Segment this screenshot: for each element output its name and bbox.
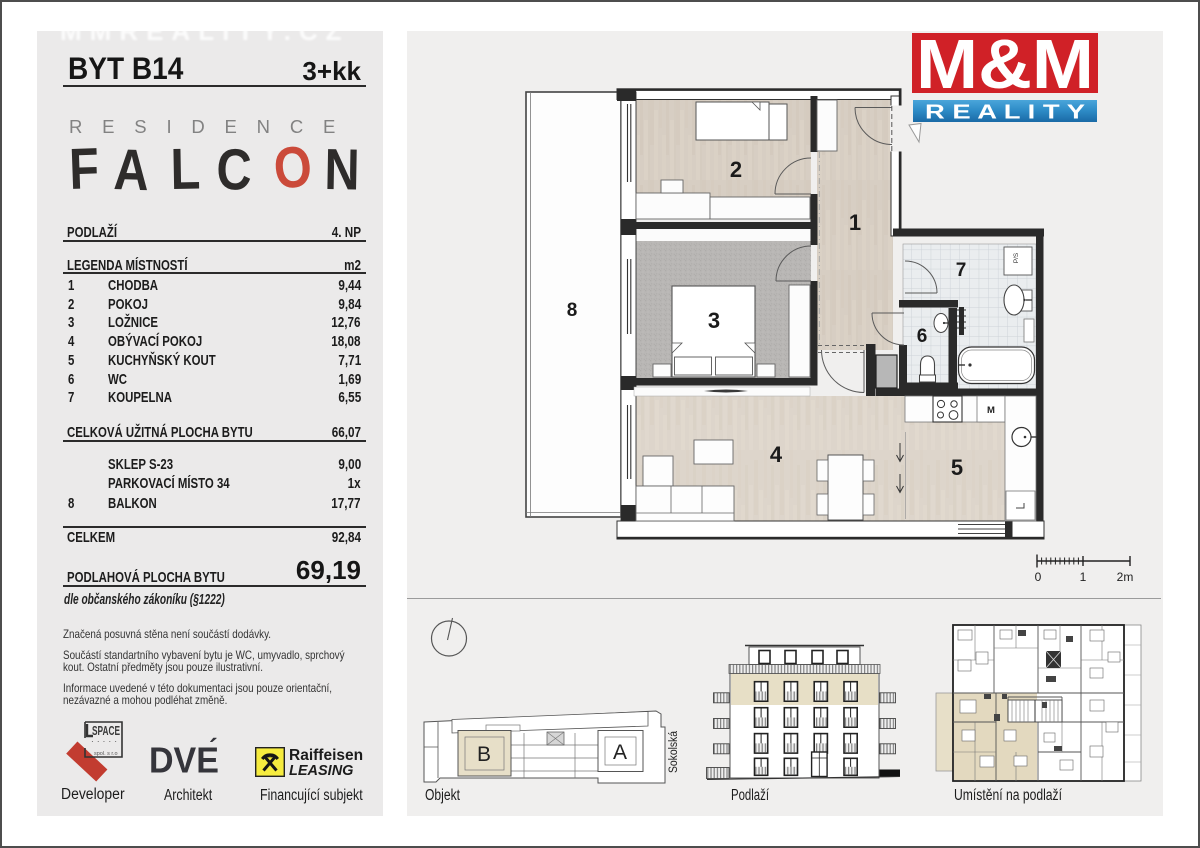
svg-text:B: B	[477, 743, 491, 766]
svg-text:A: A	[613, 741, 627, 764]
svg-text:Podlaží: Podlaží	[731, 787, 770, 804]
svg-text:Umístění na podlaží: Umístění na podlaží	[954, 787, 1063, 804]
svg-text:8: 8	[567, 300, 578, 321]
svg-text:6: 6	[917, 326, 928, 347]
svg-text:2: 2	[730, 157, 742, 182]
svg-text:1: 1	[849, 210, 861, 235]
svg-text:3: 3	[708, 308, 720, 333]
svg-text:R E A L I T Y: R E A L I T Y	[925, 102, 1086, 124]
svg-text:M&M: M&M	[916, 25, 1094, 103]
svg-text:2m: 2m	[1117, 570, 1134, 584]
svg-text:0: 0	[1035, 570, 1042, 584]
svg-text:7: 7	[956, 260, 967, 281]
svg-text:1: 1	[1080, 570, 1087, 584]
svg-text:P/S: P/S	[1013, 252, 1020, 263]
svg-text:Objekt: Objekt	[425, 787, 461, 804]
svg-text:Sokolská: Sokolská	[668, 730, 680, 773]
svg-text:4: 4	[770, 442, 783, 467]
svg-text:5: 5	[951, 455, 963, 480]
svg-text:M: M	[987, 405, 995, 416]
